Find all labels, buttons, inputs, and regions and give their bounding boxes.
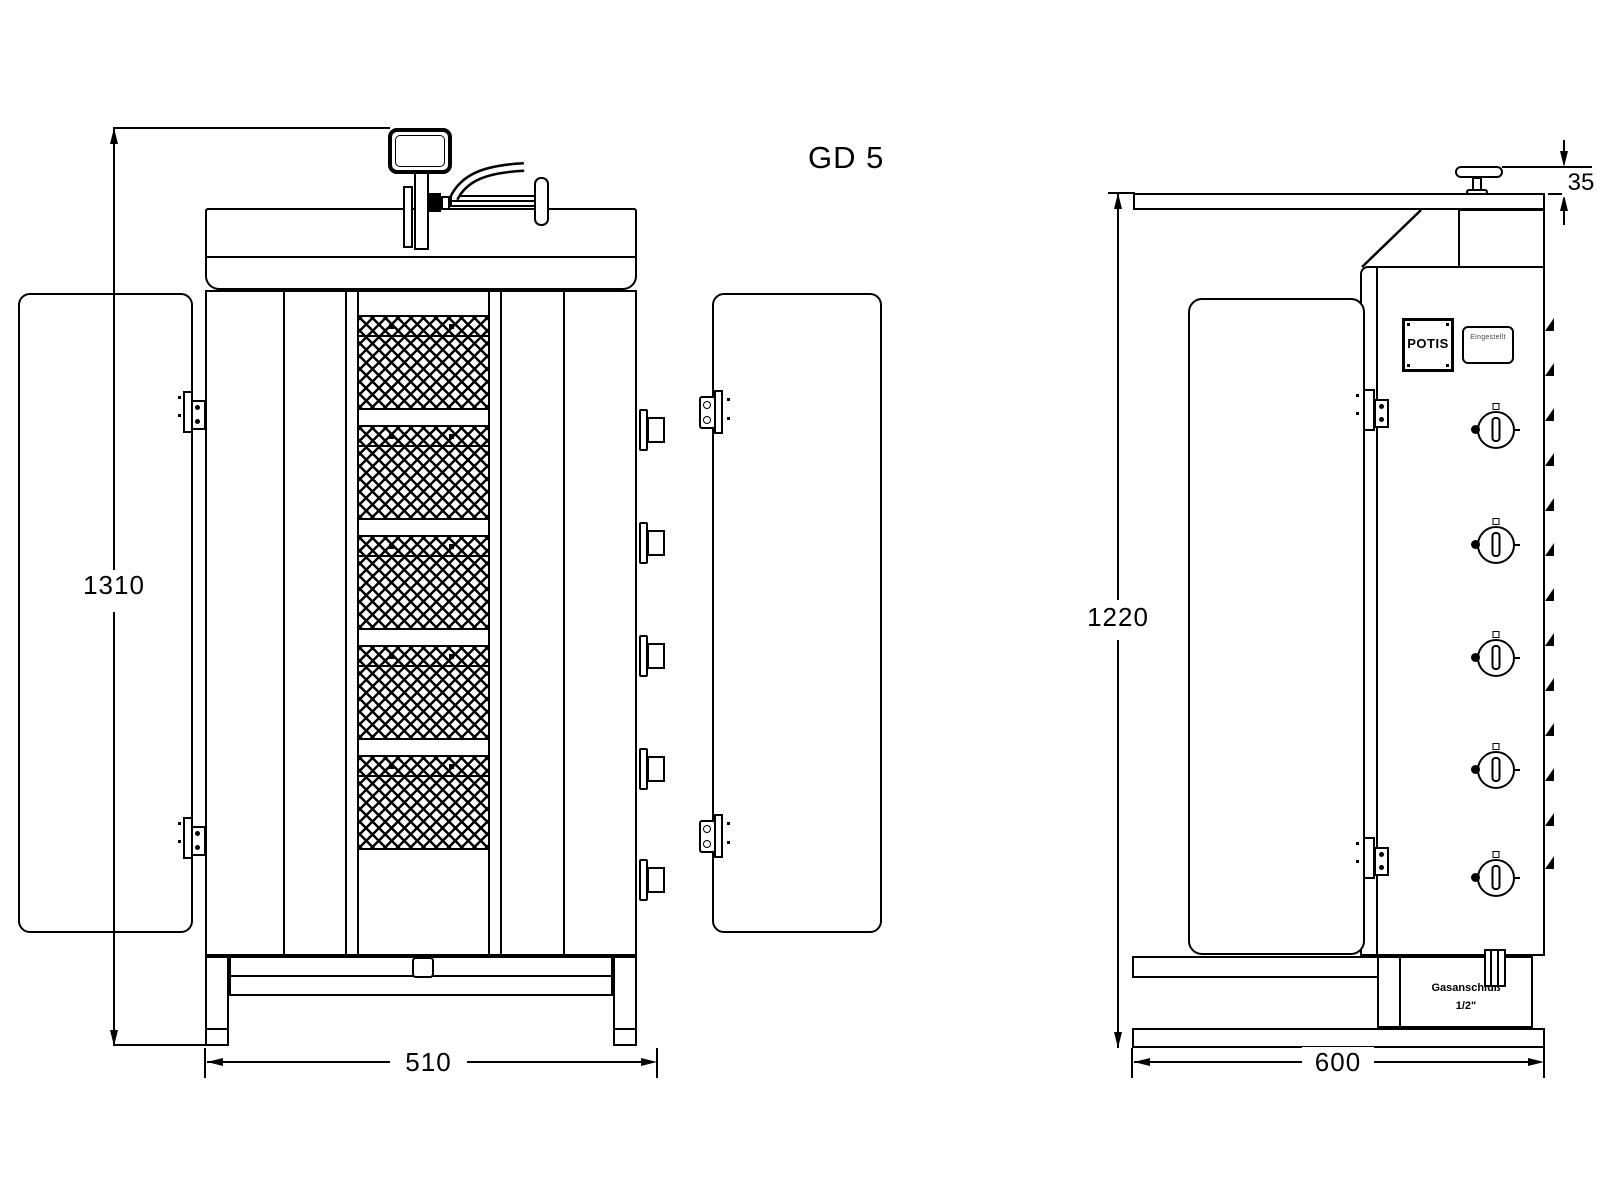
dim-1220-label: 1220 xyxy=(1058,602,1178,633)
dim-arrow-left xyxy=(1134,1058,1150,1066)
dim-510-label: 510 xyxy=(390,1047,467,1078)
model-label: GD 5 xyxy=(808,140,884,176)
dim-arrow-right xyxy=(641,1058,657,1066)
skewer-handle xyxy=(534,177,549,226)
brand-plate-label: POTIS xyxy=(1405,336,1451,351)
dim-510-line xyxy=(467,1061,641,1063)
hinge-dot xyxy=(178,396,181,399)
burner-mesh-panel xyxy=(359,755,488,850)
front-panel-line-6 xyxy=(563,292,565,954)
dim-510-tick xyxy=(204,1048,206,1078)
gas-valve-cap xyxy=(647,867,665,893)
hinge-bolt xyxy=(195,419,200,424)
front-leg-right xyxy=(613,956,637,1030)
burner-mesh-panel xyxy=(359,535,488,630)
dim-510-tick xyxy=(656,1048,658,1078)
burner-mesh-panel xyxy=(359,315,488,410)
gas-connection-box: Gasanschluß 1/2" xyxy=(1399,956,1533,1028)
front-panel-line-2 xyxy=(345,292,347,954)
spit-clamp-base xyxy=(1466,189,1488,195)
front-foot-right xyxy=(613,1028,637,1046)
dim-35-ext-top xyxy=(1502,166,1592,168)
side-top-bar xyxy=(1133,193,1545,210)
gas-valve-cap xyxy=(647,417,665,443)
spit-flange-plate xyxy=(403,186,413,248)
dim-arrow-right xyxy=(1528,1058,1544,1066)
side-open-door xyxy=(1188,298,1365,955)
plate-screw xyxy=(1446,323,1449,326)
hinge-hole xyxy=(703,825,711,833)
dim-35-line xyxy=(1563,211,1565,225)
gas-connection-label: Gasanschluß xyxy=(1401,982,1531,994)
hinge-dot xyxy=(178,822,181,825)
hinge-bolt xyxy=(195,831,200,836)
hinge-dot xyxy=(1356,394,1359,397)
dim-arrow-left xyxy=(207,1058,223,1066)
side-base-post xyxy=(1377,956,1401,1028)
front-panel-line-1 xyxy=(283,292,285,954)
hinge-bolt xyxy=(1379,865,1384,870)
hinge-dot xyxy=(727,398,730,401)
burner-bracket xyxy=(1545,856,1554,869)
skewer-bar-line xyxy=(452,200,536,202)
spit-chuck xyxy=(428,193,441,212)
dim-600-tick xyxy=(1543,1048,1545,1078)
hinge-dot xyxy=(727,417,730,420)
dim-1310-line xyxy=(113,612,115,1046)
hinge-hole xyxy=(703,401,711,409)
dim-1310-ext-bottom xyxy=(113,1044,207,1046)
dim-600-label: 600 xyxy=(1302,1047,1374,1078)
gas-connection-size: 1/2" xyxy=(1401,1000,1531,1012)
dim-arrow-up xyxy=(110,128,118,144)
dim-arrow-up xyxy=(1560,195,1568,211)
plate-screw xyxy=(1407,364,1410,367)
burner-bracket xyxy=(1545,363,1554,376)
burner-bracket xyxy=(1545,768,1554,781)
control-knob xyxy=(1477,751,1515,789)
hinge-dot xyxy=(727,841,730,844)
burner-bracket xyxy=(1545,633,1554,646)
front-foot-left xyxy=(205,1028,229,1046)
side-base-plate xyxy=(1132,1028,1545,1048)
burner-bracket xyxy=(1545,318,1554,331)
rating-plate: Eingestellt xyxy=(1462,326,1514,364)
gas-valve-cap xyxy=(647,643,665,669)
grease-tube-core xyxy=(454,167,524,198)
motor-box-inner xyxy=(395,135,445,167)
gas-pipe-line xyxy=(1497,951,1499,985)
side-hood-diagonal xyxy=(1362,210,1421,267)
burner-bracket xyxy=(1545,408,1554,421)
control-knob xyxy=(1477,411,1515,449)
dim-35-label: 35 xyxy=(1562,169,1600,197)
control-knob xyxy=(1477,639,1515,677)
plate-screw xyxy=(1446,364,1449,367)
hinge-bolt xyxy=(1379,417,1384,422)
burner-bracket xyxy=(1545,813,1554,826)
dim-1220-line xyxy=(1117,193,1119,600)
hinge-dot xyxy=(1356,842,1359,845)
gas-pipe xyxy=(1484,949,1506,987)
burner-bracket xyxy=(1545,543,1554,556)
dim-arrow-down xyxy=(1560,151,1568,167)
brand-plate: POTIS xyxy=(1402,318,1454,372)
hinge-dot xyxy=(178,414,181,417)
dim-600-line xyxy=(1134,1061,1302,1063)
burner-mesh-panel xyxy=(359,645,488,740)
front-header-inner-line xyxy=(207,256,635,258)
dim-1310-ext-top xyxy=(113,127,390,129)
burner-bracket xyxy=(1545,453,1554,466)
grease-tube-outline xyxy=(454,167,524,198)
hinge-hole xyxy=(703,840,711,848)
hinge-bolt xyxy=(1379,852,1384,857)
side-base-rail xyxy=(1132,956,1379,978)
dim-arrow-up xyxy=(1114,193,1122,209)
spit-chuck-nut xyxy=(441,196,450,210)
technical-drawing-gd5: POTIS Eingestellt Gasanschluß 1/2 xyxy=(0,0,1600,1200)
control-knob xyxy=(1477,859,1515,897)
hinge-dot xyxy=(727,822,730,825)
hinge-bolt xyxy=(1379,404,1384,409)
burner-bracket xyxy=(1545,678,1554,691)
plate-screw xyxy=(1407,323,1410,326)
front-panel-line-5 xyxy=(500,292,502,954)
hinge-bolt xyxy=(195,405,200,410)
dim-1220-ext-top xyxy=(1108,192,1135,194)
dim-arrow-down xyxy=(1114,1032,1122,1048)
hinge-bolt xyxy=(195,845,200,850)
dim-600-line xyxy=(1374,1061,1528,1063)
burner-bracket xyxy=(1545,498,1554,511)
front-panel-line-4 xyxy=(488,292,490,954)
burner-bracket xyxy=(1545,588,1554,601)
hinge-dot xyxy=(1356,412,1359,415)
burner-bracket xyxy=(1545,723,1554,736)
spit-bottom-bracket xyxy=(412,957,434,978)
front-left-door xyxy=(18,293,193,933)
dim-600-tick xyxy=(1131,1048,1133,1078)
dim-1220-line xyxy=(1117,640,1119,1048)
dim-510-line xyxy=(207,1061,390,1063)
motor-post xyxy=(414,172,429,250)
hinge-hole xyxy=(703,416,711,424)
dim-1310-label: 1310 xyxy=(54,570,174,601)
hinge-dot xyxy=(1356,860,1359,863)
side-head-block xyxy=(1458,209,1545,268)
gas-valve-cap xyxy=(647,530,665,556)
hinge-dot xyxy=(178,840,181,843)
dim-1310-line xyxy=(113,128,115,572)
burner-mesh-panel xyxy=(359,425,488,520)
gas-valve-cap xyxy=(647,756,665,782)
front-leg-left xyxy=(205,956,229,1030)
front-base-rail-lower xyxy=(229,975,613,996)
gas-pipe-line xyxy=(1490,951,1492,985)
control-knob xyxy=(1477,526,1515,564)
front-right-door xyxy=(712,293,882,933)
rating-plate-label: Eingestellt xyxy=(1464,334,1512,341)
